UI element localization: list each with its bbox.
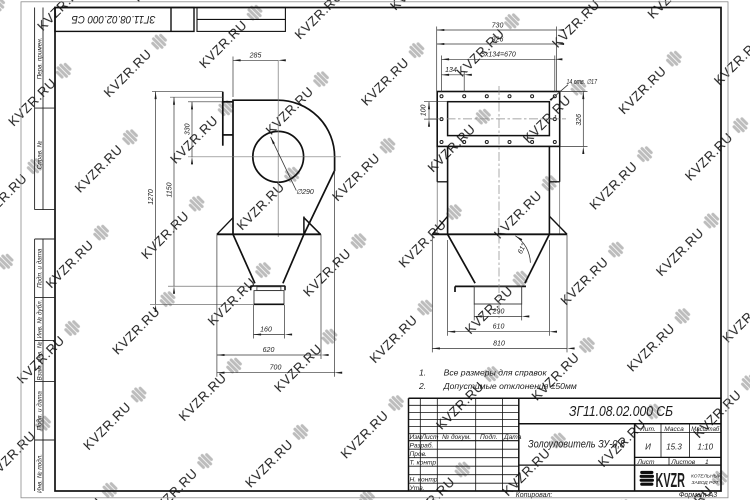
svg-text:Допустимые отклонения ±50мм: Допустимые отклонения ±50мм bbox=[443, 381, 577, 391]
svg-text:160: 160 bbox=[260, 327, 272, 334]
svg-text:290: 290 bbox=[492, 308, 505, 315]
svg-text:Справ. №: Справ. № bbox=[36, 141, 43, 170]
svg-text:И: И bbox=[645, 443, 651, 452]
svg-text:Подп.: Подп. bbox=[480, 433, 498, 441]
svg-text:Лист: Лист bbox=[421, 434, 439, 441]
svg-text:Масса: Масса bbox=[664, 426, 684, 433]
svg-text:Масштаб: Масштаб bbox=[691, 425, 719, 433]
svg-text:Листов: Листов bbox=[670, 459, 696, 466]
svg-text:610: 610 bbox=[493, 324, 505, 331]
svg-text:Взам. инв. №: Взам. инв. № bbox=[36, 341, 43, 380]
svg-text:Разраб.: Разраб. bbox=[410, 442, 434, 450]
svg-text:ЗГ11.08.02.000 СБ: ЗГ11.08.02.000 СБ bbox=[72, 13, 156, 25]
svg-text:1150: 1150 bbox=[167, 182, 174, 197]
svg-text:Н. контр: Н. контр bbox=[410, 477, 438, 484]
svg-text:Инв. № подл.: Инв. № подл. bbox=[35, 454, 43, 493]
svg-text:Золоуловитель ЗУ-0,8: Золоуловитель ЗУ-0,8 bbox=[528, 439, 626, 451]
svg-text:KVZR: KVZR bbox=[656, 469, 686, 492]
svg-text:Изм: Изм bbox=[410, 434, 423, 441]
svg-text:5х134=670: 5х134=670 bbox=[481, 52, 516, 59]
svg-text:Утв.: Утв. bbox=[409, 485, 425, 492]
svg-text:Т. контр: Т. контр bbox=[410, 460, 437, 467]
svg-text:700: 700 bbox=[270, 365, 282, 372]
svg-text:Дата: Дата bbox=[503, 434, 522, 441]
svg-text:285: 285 bbox=[249, 53, 262, 60]
svg-text:Копировал:: Копировал: bbox=[516, 492, 553, 499]
svg-text:1: 1 bbox=[705, 459, 709, 466]
svg-text:Формат A3: Формат A3 bbox=[679, 492, 717, 499]
svg-text:Пров.: Пров. bbox=[410, 451, 428, 458]
svg-text:100: 100 bbox=[420, 104, 427, 116]
svg-text:926: 926 bbox=[492, 37, 504, 44]
svg-text:1.: 1. bbox=[419, 368, 426, 378]
svg-text:1:10: 1:10 bbox=[698, 443, 714, 452]
svg-text:330: 330 bbox=[185, 123, 192, 135]
svg-text:№ докум.: № докум. bbox=[442, 433, 471, 441]
svg-text:810: 810 bbox=[493, 340, 505, 347]
svg-text:620: 620 bbox=[263, 347, 275, 354]
svg-text:14 отв. ∅17: 14 отв. ∅17 bbox=[567, 79, 598, 86]
svg-text:ЗАВОД РФТ: ЗАВОД РФТ bbox=[692, 480, 720, 486]
svg-text:1270: 1270 bbox=[148, 189, 155, 205]
svg-text:ЗГ11.08.02.000 СБ: ЗГ11.08.02.000 СБ bbox=[569, 403, 673, 420]
svg-text:Лит.: Лит. bbox=[639, 426, 656, 433]
svg-text:Все размеры для справок: Все размеры для справок bbox=[444, 368, 548, 378]
svg-text:2.: 2. bbox=[418, 381, 426, 391]
svg-text:730: 730 bbox=[492, 23, 504, 30]
svg-text:134: 134 bbox=[445, 67, 457, 74]
svg-text:Подп. и дата: Подп. и дата bbox=[35, 391, 43, 431]
svg-text:∅290: ∅290 bbox=[296, 189, 314, 196]
svg-text:326: 326 bbox=[576, 114, 583, 126]
svg-text:15.3: 15.3 bbox=[666, 443, 682, 452]
svg-text:Лист: Лист bbox=[637, 459, 655, 466]
svg-text:Инв. № дубл.: Инв. № дубл. bbox=[35, 300, 43, 339]
svg-text:Подп. и дата: Подп. и дата bbox=[35, 248, 43, 288]
svg-text:Перв. примен.: Перв. примен. bbox=[36, 38, 43, 80]
